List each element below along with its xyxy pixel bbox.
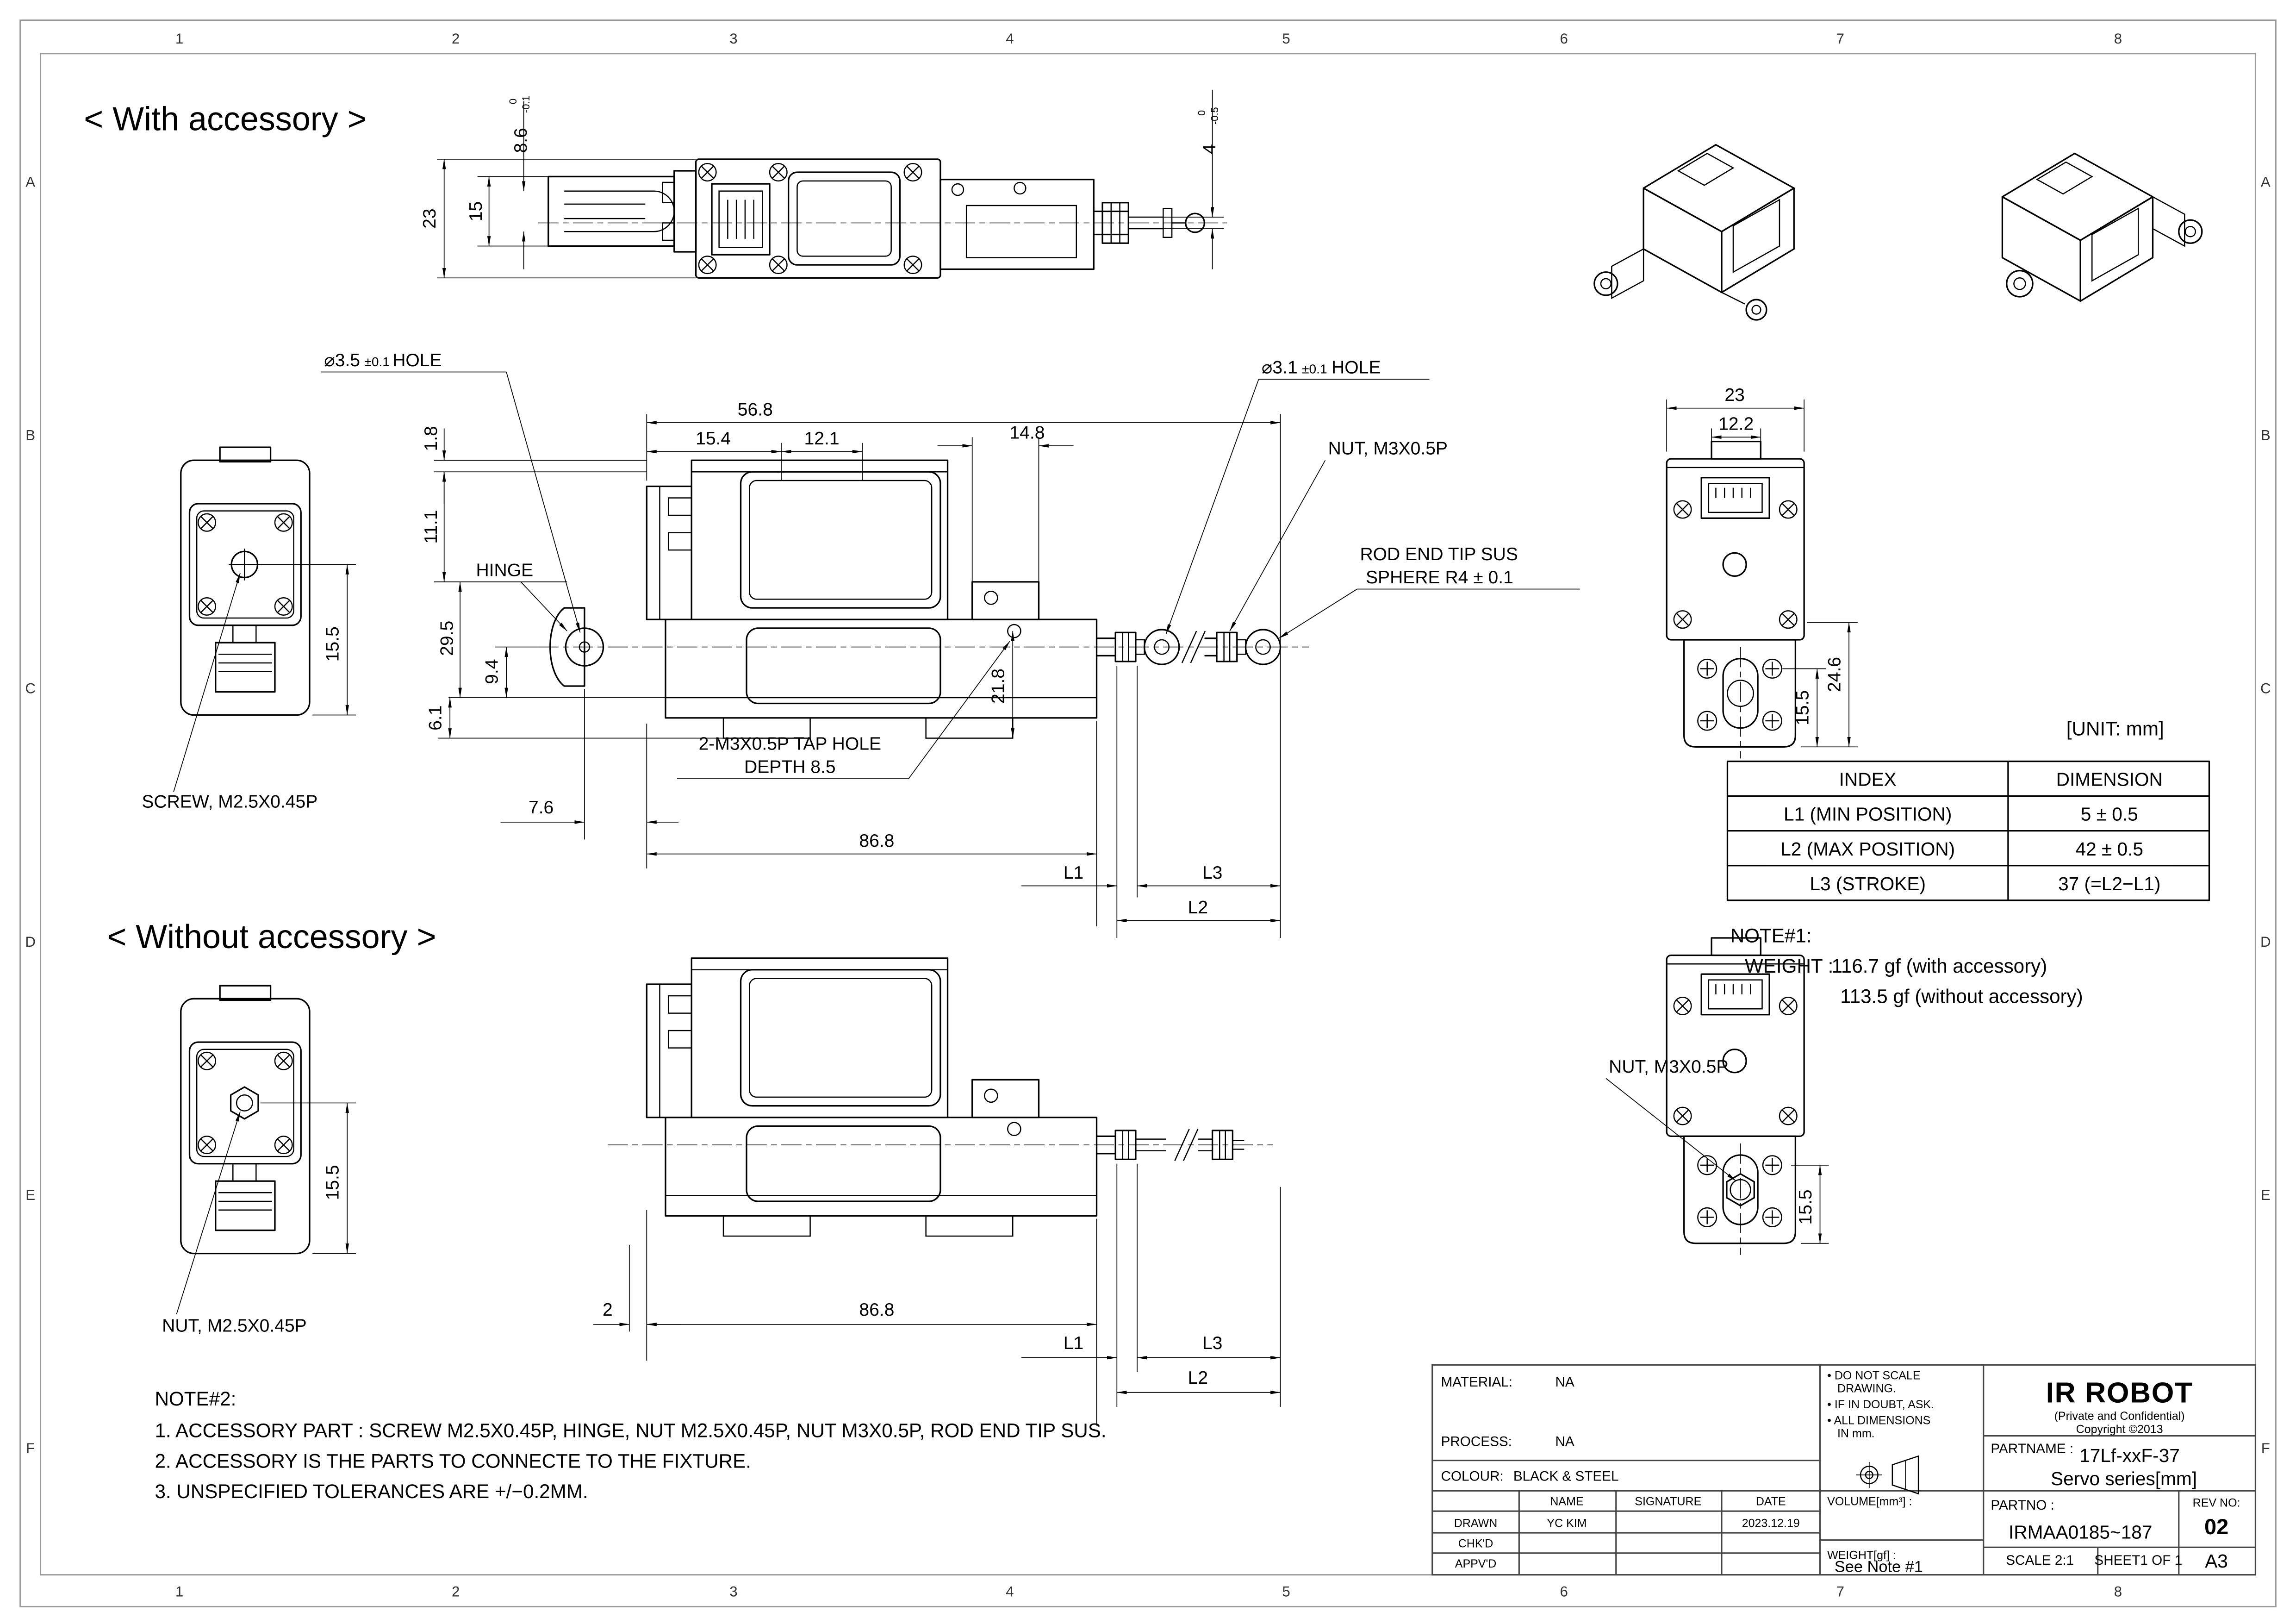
dim-L1: L1 <box>1064 1333 1083 1353</box>
row-label-left: B <box>25 427 35 443</box>
drawn-date: 2023.12.19 <box>1742 1517 1800 1530</box>
dim-14.8: 14.8 <box>1009 423 1045 443</box>
colour-value: BLACK & STEEL <box>1513 1468 1619 1484</box>
row-label-right: C <box>2260 681 2271 697</box>
index-table-cell: 5 ± 0.5 <box>2081 804 2138 825</box>
partname-line1: 17Lf-xxF-37 <box>2079 1445 2180 1466</box>
colour-label: COLOUR: <box>1441 1468 1504 1484</box>
note1-title: NOTE#1: <box>1730 924 1812 946</box>
row-label-appvd: APPV'D <box>1455 1557 1497 1570</box>
index-table: INDEX DIMENSION L1 (MIN POSITION) 5 ± 0.… <box>1727 762 2209 900</box>
section-title-without-accessory: < Without accessory > <box>107 918 436 956</box>
col-label-bottom: 7 <box>1836 1584 1844 1600</box>
material-label: MATERIAL: <box>1441 1374 1513 1390</box>
drawing-sheet: 1 2 3 4 5 6 7 8 1 2 3 4 5 6 7 8 A B C D … <box>0 0 2296 1624</box>
index-table-cell: L2 (MAX POSITION) <box>1780 838 1955 860</box>
row-label-left: D <box>25 934 36 950</box>
col-label-bottom: 8 <box>2114 1584 2122 1600</box>
tb-note-b: • IF IN DOUBT, ASK. <box>1827 1398 1934 1411</box>
index-table-header-index: INDEX <box>1839 769 1897 790</box>
front-view-without-dims: 2 86.8 L1 L3 L2 <box>593 1164 1281 1426</box>
process-label: PROCESS: <box>1441 1434 1512 1449</box>
sheet-label: SHEET1 OF 1 <box>2094 1553 2182 1568</box>
note2-item2: 2. ACCESSORY IS THE PARTS TO CONNECTE TO… <box>155 1450 751 1472</box>
label-tap-hole-2: DEPTH 8.5 <box>744 757 836 777</box>
label-nut-m3-bottom: NUT, M3X0.5P <box>1609 1057 1728 1077</box>
dim-L2: L2 <box>1188 1368 1208 1388</box>
tb-note-a1: • DO NOT SCALE <box>1827 1369 1920 1382</box>
row-label-chkd: CHK'D <box>1458 1537 1493 1550</box>
col-label-bottom: 4 <box>1006 1584 1014 1600</box>
note2-title: NOTE#2: <box>155 1388 236 1410</box>
index-table-cell: L3 (STROKE) <box>1810 873 1926 894</box>
note2-item3: 3. UNSPECIFIED TOLERANCES ARE +/−0.2MM. <box>155 1480 588 1502</box>
drawn-name: YC KIM <box>1547 1517 1587 1530</box>
left-view-without-accessory: 15.5 NUT, M2.5X0.45P <box>162 986 356 1336</box>
col-label-bottom: 2 <box>452 1584 460 1600</box>
col-label-top: 4 <box>1006 31 1014 47</box>
row-label-drawn: DRAWN <box>1454 1517 1498 1530</box>
note1-line2: 113.5 gf (without accessory) <box>1840 986 2083 1007</box>
dim-4-tol-lo: -0.5 <box>1209 107 1220 125</box>
dim-8.6-tol-lo: -0.1 <box>520 95 532 113</box>
note-2: NOTE#2: 1. ACCESSORY PART : SCREW M2.5X0… <box>155 1388 1106 1502</box>
row-label-right: F <box>2261 1440 2270 1456</box>
volume-label: VOLUME[mm³] : <box>1827 1495 1912 1508</box>
dim-24.6: 24.6 <box>1824 657 1844 692</box>
right-view-with-accessory: 23 12.2 15.5 24.6 <box>1667 385 1858 758</box>
dim-15: 15 <box>466 201 486 221</box>
col-label-bottom: 6 <box>1560 1584 1568 1600</box>
dim-29.5: 29.5 <box>437 621 457 656</box>
row-label-left: C <box>25 681 36 697</box>
label-screw-m2.5: SCREW, M2.5X0.45P <box>142 792 317 812</box>
dim-23: 23 <box>420 208 440 228</box>
dim-8.6: 8.6 <box>511 128 531 153</box>
front-view-with-accessory <box>538 460 1309 738</box>
dim-9.4: 9.4 <box>482 659 502 684</box>
top-view <box>538 159 1227 278</box>
front-view-dims: ⌀3.5±0.1HOLE 56.8 15.4 12.1 1.8 11.1 29.… <box>321 350 1580 938</box>
dim-L2: L2 <box>1188 898 1208 918</box>
left-view-with-accessory: 15.5 SCREW, M2.5X0.45P <box>142 447 356 812</box>
row-label-right: A <box>2261 174 2271 190</box>
index-table-cell: 37 (=L2−L1) <box>2058 873 2160 894</box>
index-table-cell: L1 (MIN POSITION) <box>1784 804 1952 825</box>
dim-8.6-tol-hi: 0 <box>507 99 519 104</box>
note-1: NOTE#1: WEIGHT : 116.7 gf (with accessor… <box>1730 924 2083 1007</box>
dim-6.1: 6.1 <box>425 706 445 731</box>
label-nut-m2.5: NUT, M2.5X0.45P <box>162 1316 307 1336</box>
col-label-top: 3 <box>729 31 737 47</box>
revno-value: 02 <box>2204 1515 2228 1539</box>
col-label-bottom: 5 <box>1282 1584 1290 1600</box>
col-label-bottom: 1 <box>175 1584 183 1600</box>
dim-86.8: 86.8 <box>859 831 894 851</box>
dim-7.6: 7.6 <box>529 798 554 818</box>
col-label-top: 7 <box>1836 31 1844 47</box>
label-nut-m3: NUT, M3X0.5P <box>1328 439 1448 459</box>
dim-2: 2 <box>603 1300 613 1320</box>
top-view-dims: 23 15 8.6 0 -0.1 4 0 -0.5 <box>420 90 1224 278</box>
row-label-left: E <box>25 1187 35 1203</box>
unit-note: [UNIT: mm] <box>2066 718 2164 739</box>
dim-15.5: 15.5 <box>323 1165 342 1200</box>
dim-86.8: 86.8 <box>859 1300 894 1320</box>
col-label-top: 1 <box>175 31 183 47</box>
label-rod-end-2: SPHERE R4 ± 0.1 <box>1366 568 1513 587</box>
col-label-top: 6 <box>1560 31 1568 47</box>
isometric-view-1 <box>1594 145 1794 320</box>
copyright-note: Copyright ©2013 <box>2076 1423 2163 1436</box>
dim-15.5: 15.5 <box>323 626 342 662</box>
row-label-right: D <box>2260 934 2271 950</box>
dim-12.1: 12.1 <box>804 429 840 449</box>
dim-15.5-right: 15.5 <box>1793 690 1813 725</box>
dim-23-right: 23 <box>1724 385 1744 405</box>
weight-value: See Note #1 <box>1835 1558 1923 1575</box>
isometric-view-2 <box>2002 153 2202 301</box>
col-label-top: 2 <box>452 31 460 47</box>
tb-note-c1: • ALL DIMENSIONS <box>1827 1414 1930 1427</box>
drawing-canvas: 1 2 3 4 5 6 7 8 1 2 3 4 5 6 7 8 A B C D … <box>0 0 2296 1624</box>
dim-L3: L3 <box>1202 1333 1222 1353</box>
dim-1.8: 1.8 <box>421 426 441 451</box>
label-rod-end-1: ROD END TIP SUS <box>1360 544 1518 564</box>
dim-15.4: 15.4 <box>696 429 731 449</box>
row-label-right: E <box>2261 1187 2271 1203</box>
col-label-bottom: 3 <box>729 1584 737 1600</box>
dim-4: 4 <box>1200 144 1220 154</box>
partno-value: IRMAA0185~187 <box>2009 1522 2153 1543</box>
partno-label: PARTNO : <box>1991 1498 2054 1513</box>
size-label: A3 <box>2205 1550 2228 1572</box>
section-title-with-accessory: < With accessory > <box>84 100 367 137</box>
front-view-without-accessory <box>608 958 1273 1236</box>
col-header-date: DATE <box>1756 1495 1786 1508</box>
projection-symbol-icon <box>1856 1456 1918 1493</box>
material-value: NA <box>1555 1374 1574 1390</box>
dim-56.8: 56.8 <box>738 400 773 419</box>
dim-L1: L1 <box>1064 863 1083 883</box>
row-label-right: B <box>2261 427 2271 443</box>
note1-line1: 116.7 gf (with accessory) <box>1832 955 2047 977</box>
col-header-name: NAME <box>1550 1495 1583 1508</box>
partname-line2: Servo series[mm] <box>2051 1468 2197 1489</box>
process-value: NA <box>1555 1434 1574 1449</box>
dim-12.2: 12.2 <box>1718 414 1754 434</box>
dim-L3: L3 <box>1202 863 1222 883</box>
col-label-top: 5 <box>1282 31 1290 47</box>
label-hole-3.1: ⌀3.1±0.1HOLE <box>1262 358 1381 378</box>
title-block: MATERIAL: NA PROCESS: NA COLOUR: BLACK &… <box>1432 1365 2256 1575</box>
dim-4-tol-hi: 0 <box>1196 110 1207 116</box>
label-hole-3.5: ⌀3.5±0.1HOLE <box>324 350 442 370</box>
partname-label: PARTNAME : <box>1991 1441 2073 1456</box>
dim-11.1: 11.1 <box>421 510 441 543</box>
row-label-left: F <box>26 1440 35 1456</box>
col-label-top: 8 <box>2114 31 2122 47</box>
note1-weight-label: WEIGHT : <box>1745 955 1833 977</box>
tb-note-c2: IN mm. <box>1837 1427 1875 1440</box>
index-table-cell: 42 ± 0.5 <box>2075 838 2143 860</box>
company-name: IR ROBOT <box>2046 1377 2193 1409</box>
revno-label: REV NO: <box>2193 1497 2240 1510</box>
label-hinge: HINGE <box>476 560 533 580</box>
col-header-signature: SIGNATURE <box>1635 1495 1701 1508</box>
tb-note-a2: DRAWING. <box>1837 1382 1896 1395</box>
row-label-left: A <box>25 174 35 190</box>
note2-item1: 1. ACCESSORY PART : SCREW M2.5X0.45P, HI… <box>155 1420 1106 1442</box>
label-tap-hole-1: 2-M3X0.5P TAP HOLE <box>699 734 881 754</box>
scale-label: SCALE 2:1 <box>2006 1553 2074 1568</box>
dim-21.8: 21.8 <box>988 668 1008 704</box>
dim-15.5: 15.5 <box>1796 1190 1816 1225</box>
right-view-without-accessory: NUT, M3X0.5P 15.5 <box>1606 938 1829 1255</box>
index-table-header-dimension: DIMENSION <box>2056 769 2163 790</box>
confidential-note: (Private and Confidential) <box>2054 1410 2185 1423</box>
